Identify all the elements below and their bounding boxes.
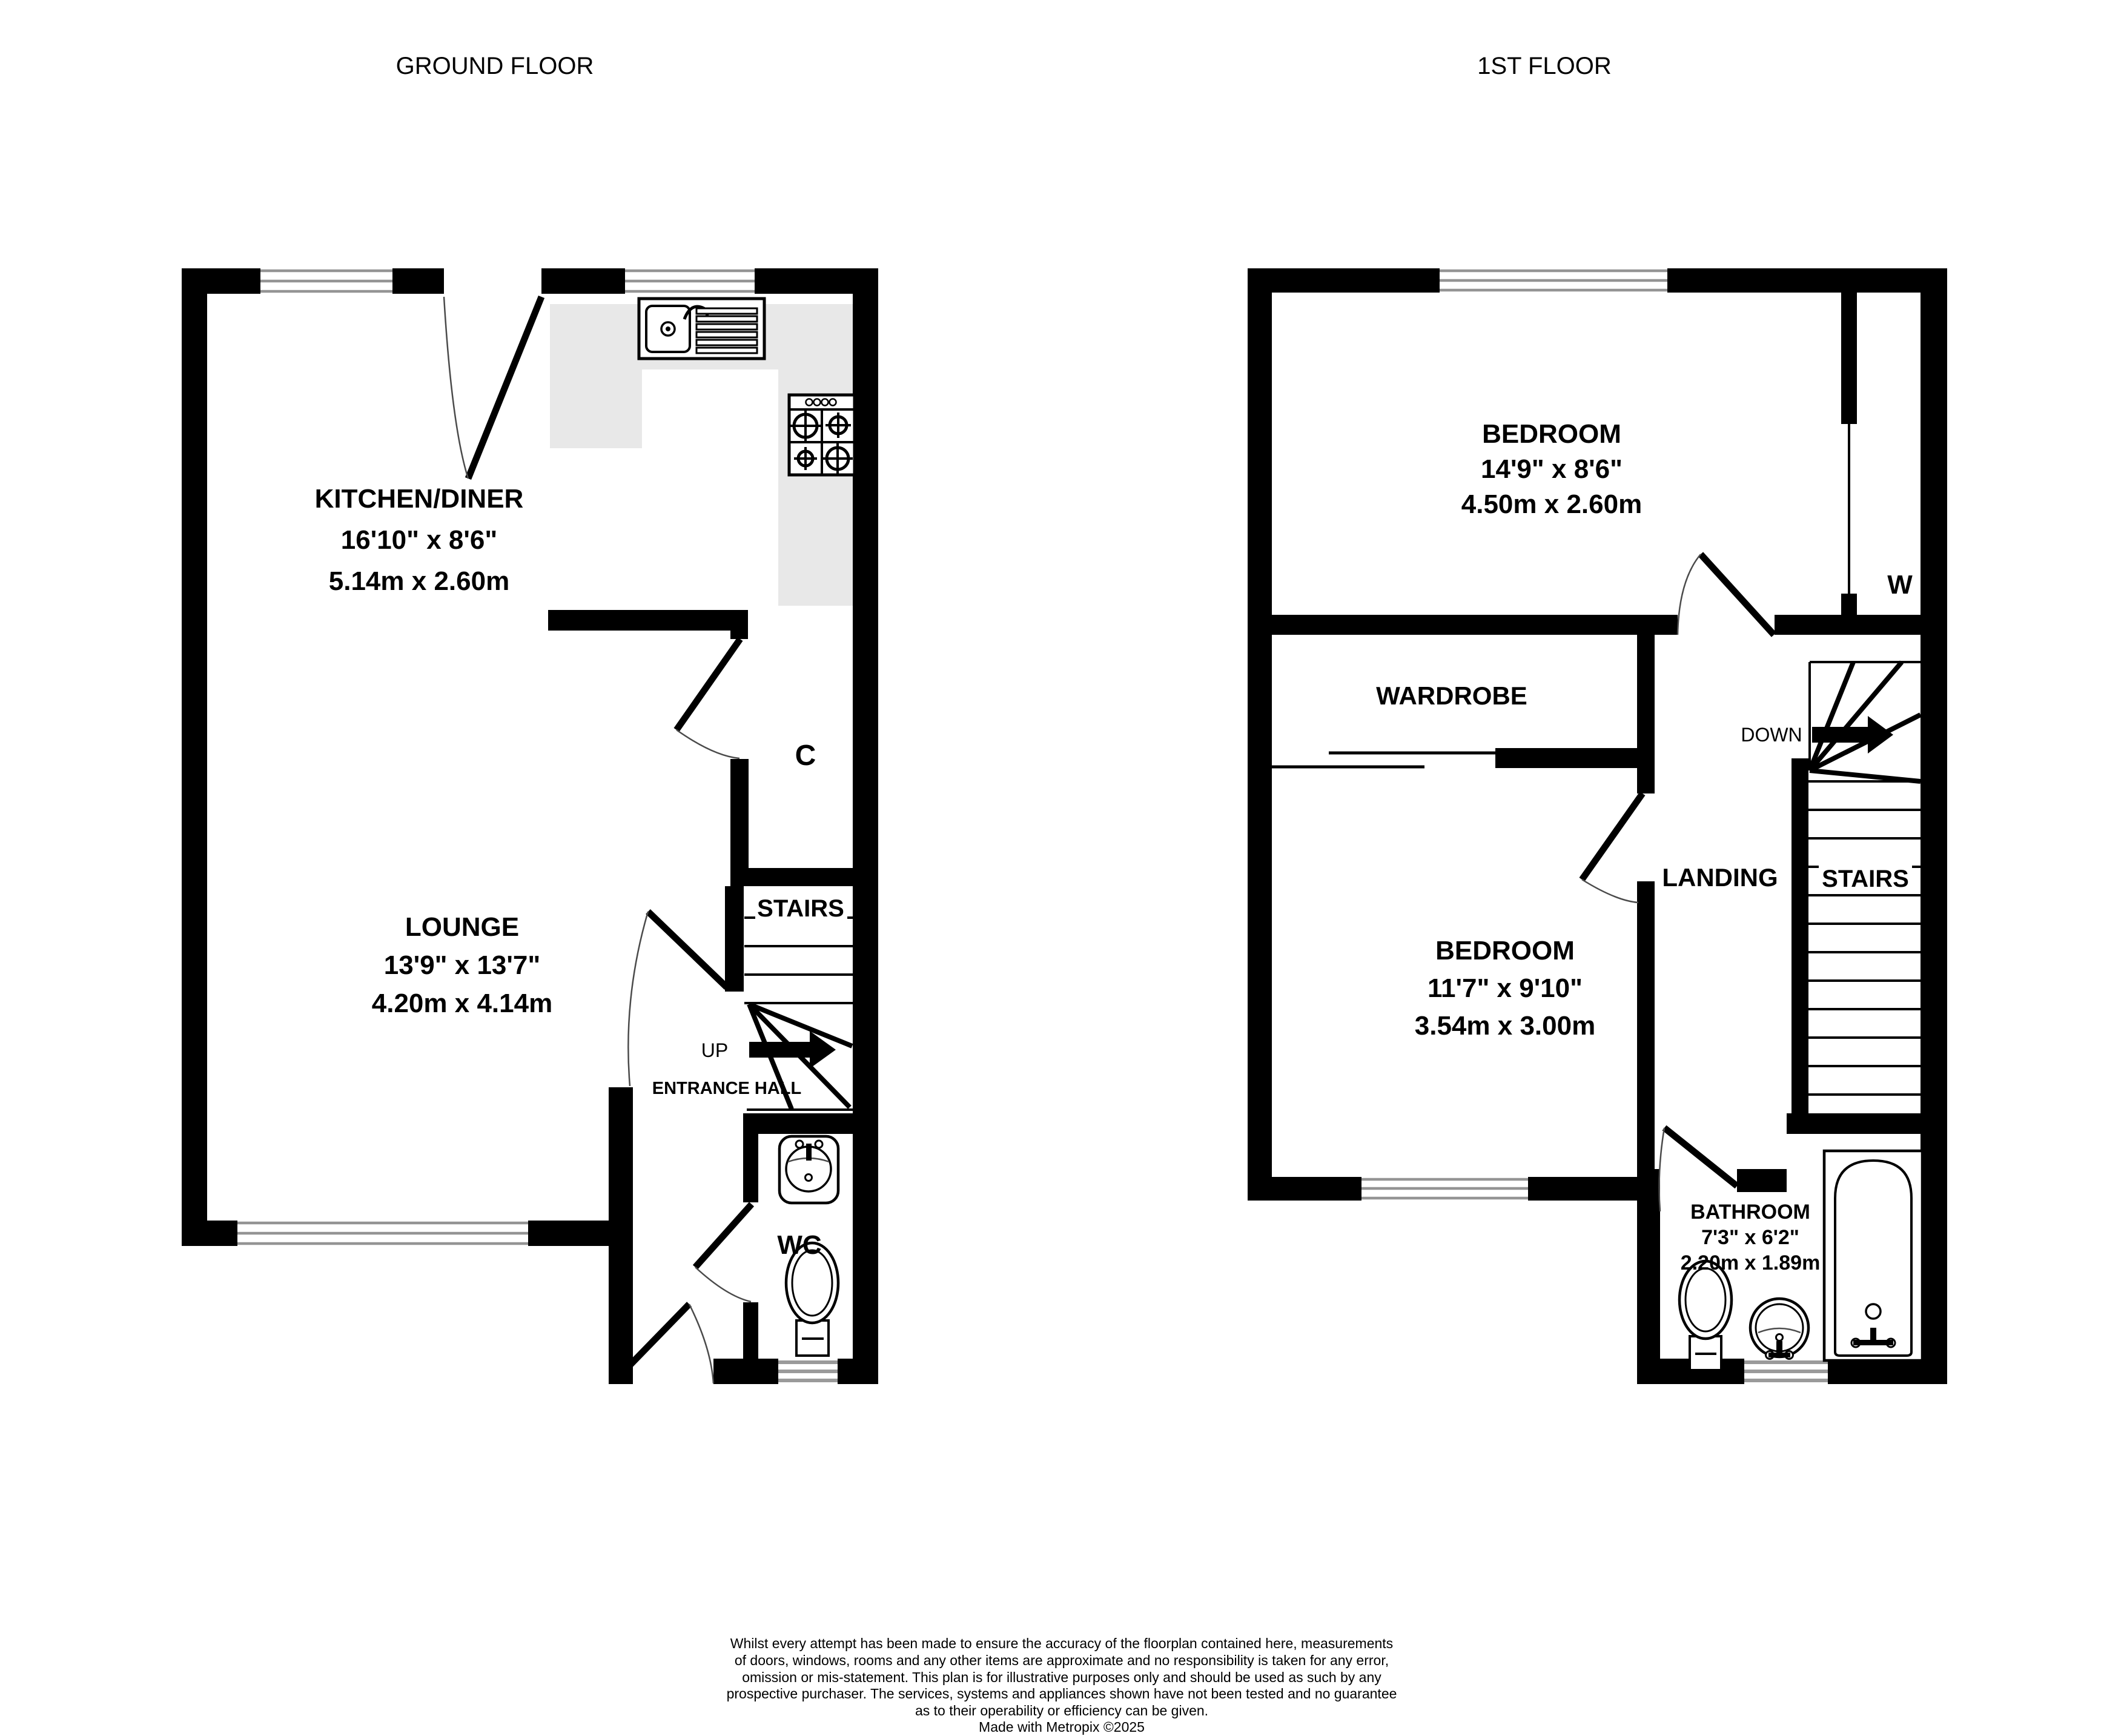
sink-icon [639,299,764,359]
pedestal-basin-icon [1750,1299,1808,1359]
disclaimer-line: of doors, windows, rooms and any other i… [735,1652,1389,1668]
room-name: BATHROOM [1690,1201,1810,1224]
room-dims-imperial: 11'7" x 9'10" [1428,973,1583,1003]
room-dims-metric: 2.20m x 1.89m [1681,1251,1821,1274]
door-swing-icon [1582,793,1643,903]
room-dims-metric: 3.54m x 3.00m [1415,1011,1595,1041]
down-label: DOWN [1741,724,1802,746]
footer-disclaimer: Whilst every attempt has been made to en… [727,1635,1397,1735]
staircase: STAIRS UP [701,895,853,1110]
window-icon [260,268,392,294]
first-floor-title: 1ST FLOOR [1477,53,1612,79]
cupboard-label: C [795,740,816,772]
room-name: LOUNGE [405,912,519,942]
up-label: UP [701,1039,728,1061]
window-icon [1440,268,1667,293]
landing-label: LANDING [1662,863,1778,892]
room-name: BEDROOM [1435,936,1575,966]
hand-basin-icon [779,1136,838,1203]
toilet-icon [1679,1261,1732,1370]
wc-label: WC [777,1230,821,1260]
first-floor-plan: 1ST FLOOR [1248,53,1947,1384]
door-swing-icon [444,268,541,479]
entrance-hall-label: ENTRANCE HALL [652,1079,802,1098]
room-kitchen-diner: KITCHEN/DINER 16'10" x 8'6" 5.14m x 2.60… [315,484,524,596]
room-dims-imperial: 14'9" x 8'6" [1481,454,1623,484]
ground-floor-plan: GROUND FLOOR [182,53,878,1384]
door-swing-icon [695,1204,752,1302]
room-name: KITCHEN/DINER [315,484,524,514]
disclaimer-line: prospective purchaser. The services, sys… [727,1686,1397,1701]
room-dims-imperial: 16'10" x 8'6" [341,525,497,555]
wardrobe-sliding-doors [1271,753,1495,767]
hob-icon [789,395,855,475]
metropix-credit: Made with Metropix ©2025 [979,1719,1145,1735]
disclaimer-line: omission or mis-statement. This plan is … [742,1669,1381,1685]
room-lounge: LOUNGE 13'9" x 13'7" 4.20m x 4.14m [372,912,552,1018]
disclaimer-line: Whilst every attempt has been made to en… [730,1635,1393,1651]
stairs-label: STAIRS [1822,866,1909,892]
room-dims-metric: 5.14m x 2.60m [329,566,509,596]
room-bedroom-1: BEDROOM 14'9" x 8'6" 4.50m x 2.60m [1461,419,1642,519]
front-door-swing-icon [625,1304,713,1383]
room-dims-metric: 4.20m x 4.14m [372,989,552,1018]
floorplan-canvas: GROUND FLOOR [0,0,2124,1736]
frosted-window-icon [1744,1359,1828,1384]
disclaimer-line: as to their operability or efficiency ca… [915,1703,1208,1718]
door-swing-icon [1678,554,1774,635]
window-icon [625,268,755,294]
room-bedroom-2: BEDROOM 11'7" x 9'10" 3.54m x 3.00m [1415,936,1595,1041]
room-dims-metric: 4.50m x 2.60m [1461,489,1642,519]
bathtub-icon [1824,1151,1922,1360]
stairs-label: STAIRS [757,895,844,922]
wardrobe-label: WARDROBE [1376,681,1527,710]
window-icon [1361,1177,1528,1201]
ground-floor-walls [182,268,878,1384]
room-bathroom: BATHROOM 7'3" x 6'2" 2.20m x 1.89m [1681,1201,1821,1274]
ground-floor-title: GROUND FLOOR [396,53,594,79]
room-dims-imperial: 7'3" x 6'2" [1701,1226,1799,1249]
window-icon [237,1221,528,1246]
built-in-wardrobe-label: W [1887,570,1913,600]
room-dims-imperial: 13'9" x 13'7" [384,950,540,980]
door-swing-icon [1659,1128,1737,1211]
frosted-window-icon [778,1359,838,1384]
room-name: BEDROOM [1482,419,1621,449]
door-swing-icon [677,639,740,758]
